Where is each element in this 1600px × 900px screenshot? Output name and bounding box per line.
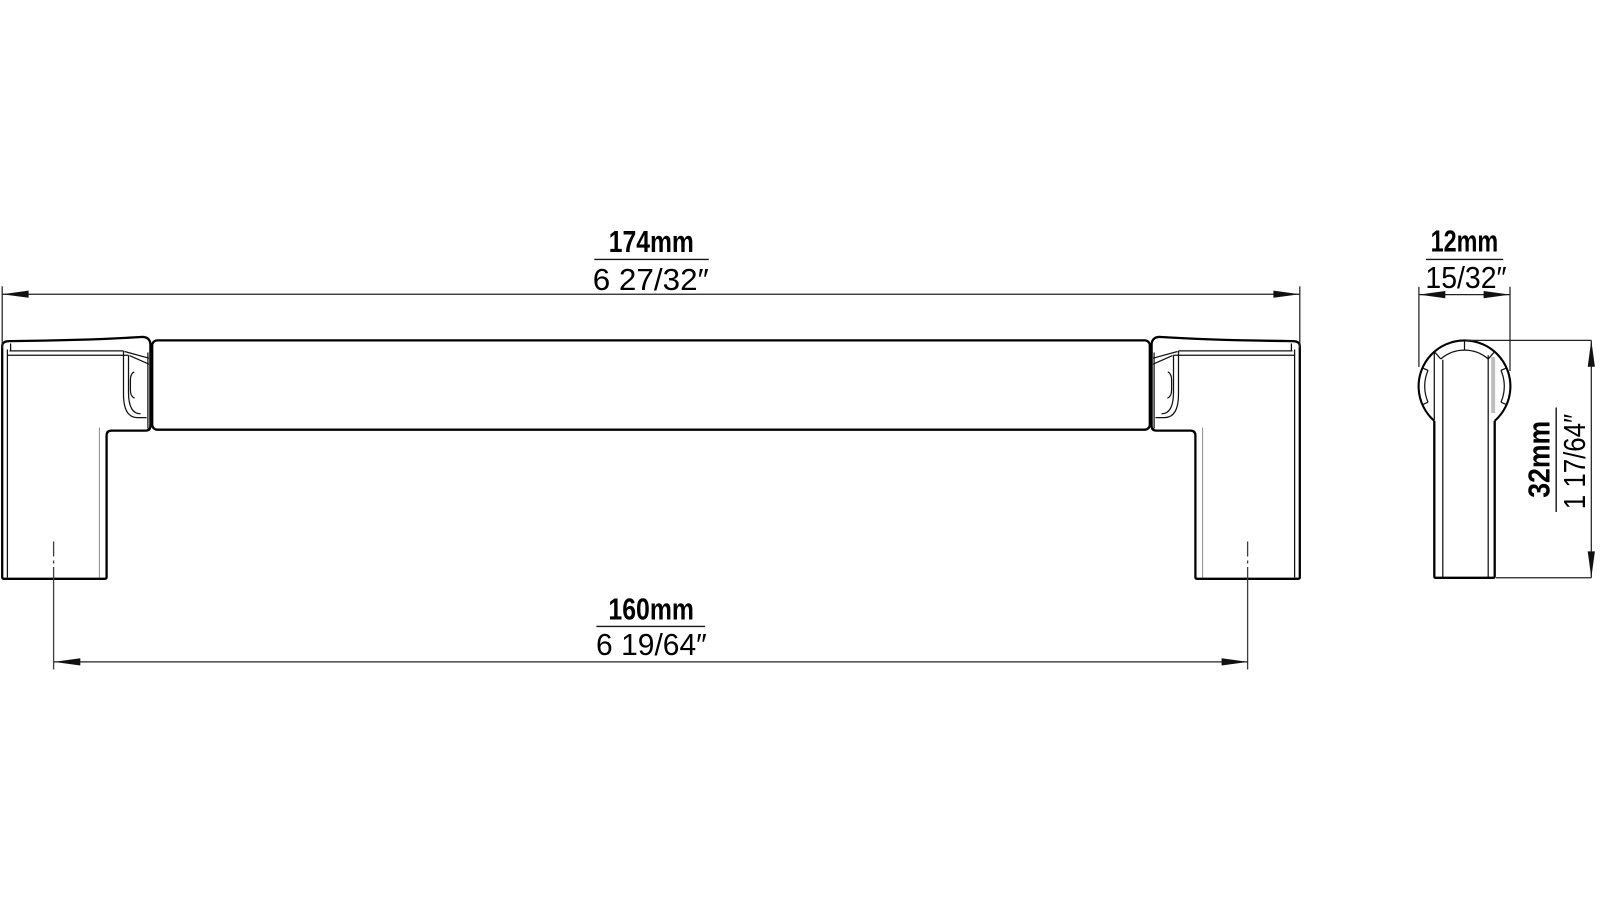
svg-text:1 17/64″: 1 17/64″ (1557, 414, 1592, 509)
svg-text:160mm: 160mm (608, 592, 694, 626)
svg-text:12mm: 12mm (1431, 223, 1499, 258)
svg-text:6 19/64″: 6 19/64″ (596, 629, 707, 662)
svg-text:15/32″: 15/32″ (1425, 261, 1506, 295)
svg-text:32mm: 32mm (1523, 421, 1557, 498)
svg-text:174mm: 174mm (609, 225, 694, 259)
svg-text:6 27/32″: 6 27/32″ (593, 262, 709, 296)
